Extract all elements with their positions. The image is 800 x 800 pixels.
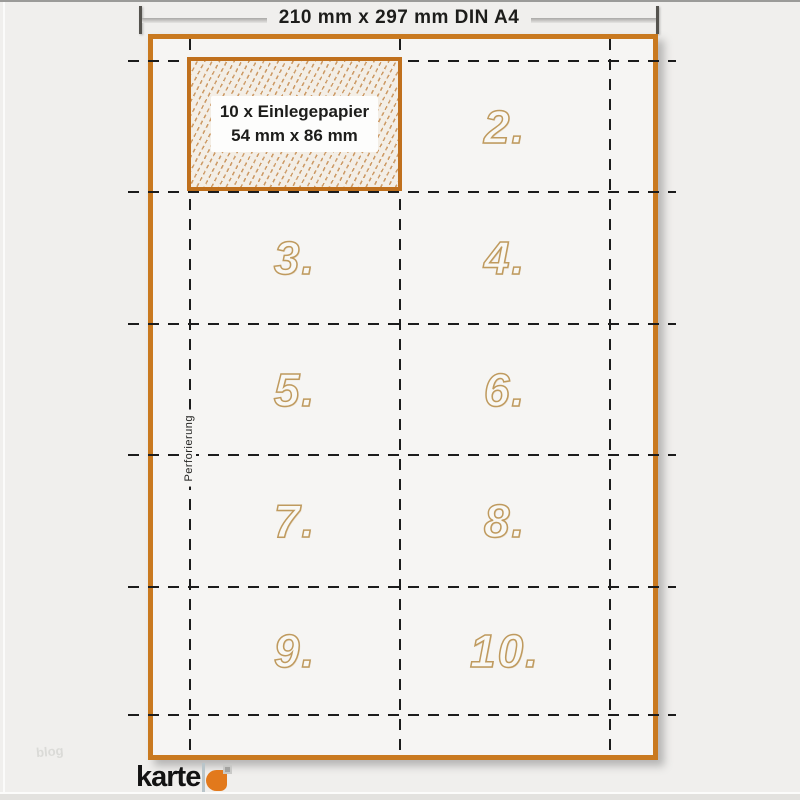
card-cell-10: 10. [400,587,610,715]
left-edge-line [3,2,5,800]
card-cell-4: 4. [400,192,610,324]
template-diagram: 210 mm x 297 mm DIN A4 2. 3. 4. 5. 6. 7.… [0,0,800,800]
card-cell-8: 8. [400,455,610,587]
insert-paper-area: 10 x Einlegepapier 54 mm x 86 mm [187,57,402,191]
card-number-4: 4. [484,231,526,285]
card-cell-2: 2. [400,61,610,192]
insert-paper-label: 10 x Einlegepapier 54 mm x 86 mm [211,96,378,152]
card-cell-6: 6. [400,324,610,455]
card-number-9: 9. [274,624,316,678]
card-cell-5: 5. [190,324,400,455]
card-number-5: 5. [274,363,316,417]
watermark-text: blog [35,743,64,760]
brand-logo: karte [136,761,233,793]
card-number-7: 7. [274,494,316,548]
card-number-6: 6. [484,363,526,417]
card-cell-3: 3. [190,192,400,324]
card-cell-7: 7. [190,455,400,587]
card-number-8: 8. [484,494,526,548]
dimension-label-text: 210 mm x 297 mm DIN A4 [267,7,532,29]
insert-paper-label-line1: 10 x Einlegepapier [220,100,369,124]
insert-paper-label-line2: 54 mm x 86 mm [220,124,369,148]
card-cell-9: 9. [190,587,400,715]
card-number-2: 2. [484,100,526,154]
perforation-label: Perforierung [182,410,196,487]
brand-logo-icon [206,763,233,792]
brand-logo-divider [202,763,205,792]
brand-logo-text: karte [136,762,200,792]
bottom-strip [0,792,800,800]
dimension-label: 210 mm x 297 mm DIN A4 [140,7,658,29]
logo-square-shape [223,765,232,774]
card-number-3: 3. [274,231,316,285]
card-number-10: 10. [470,624,540,678]
